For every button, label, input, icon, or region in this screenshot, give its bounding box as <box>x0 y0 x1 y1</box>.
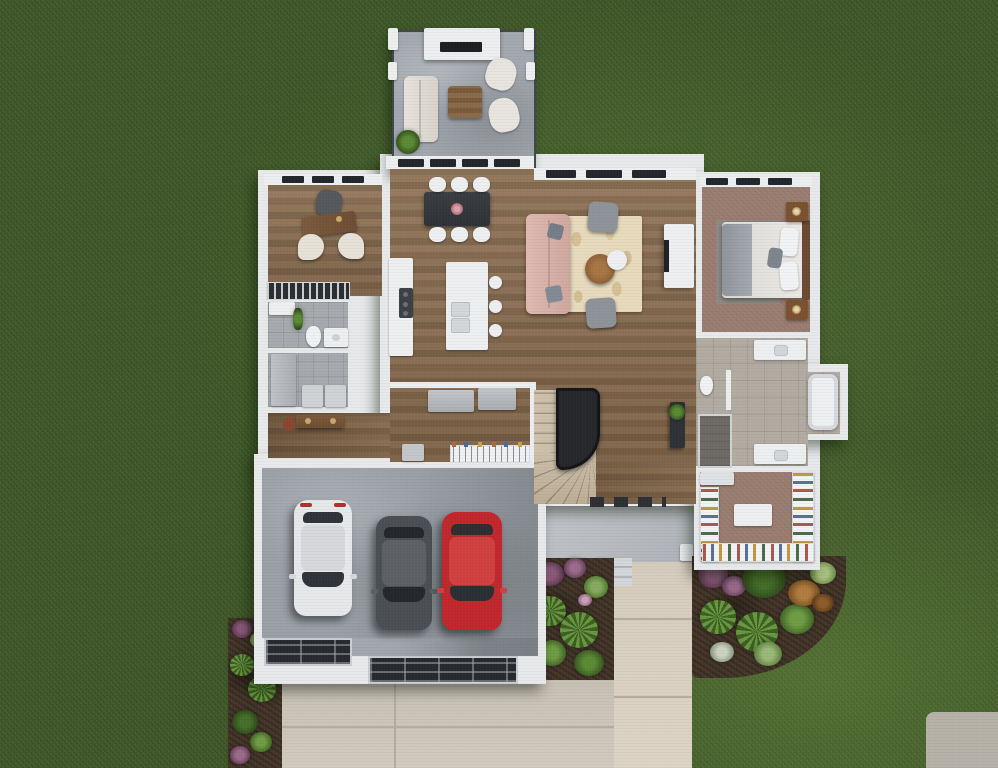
garden-bed-right-of-walkway <box>692 556 846 678</box>
driveway-joint-horizontal <box>262 726 614 728</box>
dining-chair <box>429 227 446 242</box>
bar-stool <box>489 300 502 313</box>
purple-flower-plant <box>230 746 250 764</box>
gray-car-mirror <box>430 589 437 594</box>
closet-cabinet <box>700 472 734 485</box>
deck-coffee-table <box>448 86 482 118</box>
slatted-console <box>266 282 350 300</box>
patio-door-pane <box>398 159 424 167</box>
garage-door-large <box>368 656 518 684</box>
closet-wardrobe-south <box>702 543 814 562</box>
walk-in-shower <box>698 414 732 468</box>
front-walkway <box>614 560 692 768</box>
silver-plant <box>710 642 734 662</box>
walkway-joint-2 <box>614 696 692 698</box>
range-burner <box>403 292 408 297</box>
bedroom-window <box>706 178 728 185</box>
bedroom-window <box>768 178 792 185</box>
patio-door-pane <box>430 159 456 167</box>
dining-chair <box>451 227 468 242</box>
pink-flower-plant <box>578 594 592 606</box>
bar-stool <box>489 324 502 337</box>
console-plant <box>669 404 685 420</box>
hall-decor <box>330 418 336 424</box>
mudroom-cabinet <box>478 388 516 410</box>
dryer <box>325 385 346 407</box>
white-car-taillight <box>300 503 312 507</box>
porch <box>526 504 694 562</box>
patio-door-pane <box>462 159 488 167</box>
deck-potted-plant <box>396 130 420 154</box>
vanity-sink <box>774 345 788 356</box>
shrub-plant <box>232 710 258 734</box>
red-car-mirror <box>437 588 444 593</box>
living-window <box>546 170 576 178</box>
living-armchair <box>587 201 619 233</box>
walkway-joint-1 <box>614 618 692 620</box>
bedroom-window <box>736 178 760 185</box>
front-door-threshold <box>590 497 666 507</box>
pale-plant <box>754 642 782 666</box>
gray-car-roof <box>382 540 426 586</box>
powder-vanity-left <box>269 302 295 315</box>
island-sink <box>451 318 470 333</box>
purple-flower-plant <box>564 558 586 578</box>
deck-sofa-cushion-line <box>419 80 421 138</box>
deck-post <box>524 28 534 50</box>
headboard <box>802 220 810 300</box>
water-closet-wall <box>726 370 731 410</box>
fern-plant <box>560 612 598 648</box>
white-car-taillight <box>334 503 346 507</box>
shrub-plant <box>780 604 814 634</box>
coat-rail-clothes <box>452 442 526 447</box>
toilet <box>700 376 713 395</box>
nightstand-lamp <box>792 207 801 216</box>
red-car <box>442 512 502 630</box>
office-window <box>312 176 334 183</box>
deck-post <box>526 62 535 80</box>
white-car-mirror <box>350 574 357 579</box>
gray-car-mirror <box>371 589 378 594</box>
mudroom-cabinet <box>428 390 474 412</box>
hall-ornament <box>283 417 295 431</box>
hall-decor <box>305 418 311 424</box>
dining-chair <box>473 177 490 192</box>
range-burner <box>403 302 408 307</box>
living-armchair <box>585 297 617 329</box>
office-window <box>282 176 304 183</box>
side-table-round <box>607 250 627 270</box>
office-window <box>342 176 364 183</box>
deck-post <box>388 28 398 50</box>
gray-car-windshield <box>383 587 425 602</box>
range-burner <box>403 311 408 316</box>
dining-chair <box>451 177 468 192</box>
island-sink <box>451 302 470 317</box>
bed-blanket <box>722 224 752 296</box>
dining-chair <box>429 177 446 192</box>
fern-plant <box>700 600 736 634</box>
white-car-mirror <box>289 574 296 579</box>
garage-door-small <box>264 638 352 666</box>
washer <box>302 385 323 407</box>
sofa-throw-pillow <box>545 285 564 304</box>
red-car-mirror <box>500 588 507 593</box>
living-window <box>632 170 666 178</box>
deck-post <box>388 62 397 80</box>
nightstand-lamp <box>792 305 801 314</box>
shrub-plant <box>574 650 604 676</box>
gray-car <box>376 516 432 630</box>
closet-island <box>734 504 772 526</box>
aerial-floorplan-scene <box>0 0 998 768</box>
red-car-roof <box>449 537 495 585</box>
white-car-windshield <box>302 572 344 587</box>
powder-sink <box>332 334 340 341</box>
bathtub <box>808 374 838 430</box>
dining-chair <box>473 227 490 242</box>
purple-flower-plant <box>232 620 252 638</box>
laundry-cabinet <box>271 354 296 406</box>
bed-pillow <box>779 261 799 290</box>
orange-plant <box>812 594 834 612</box>
living-window <box>586 170 622 178</box>
patio-door-pane <box>494 159 520 167</box>
dining-centerpiece <box>451 203 463 215</box>
coat-rail <box>450 445 530 463</box>
white-car <box>294 500 352 616</box>
garage-floor-right-extension <box>350 638 538 656</box>
hall-console-table <box>296 415 344 428</box>
outdoor-fireplace-opening <box>440 42 482 52</box>
gray-car-rear-window <box>384 527 424 538</box>
bar-stool <box>489 276 502 289</box>
white-car-rear-window <box>303 512 343 523</box>
shrub-plant <box>250 732 272 752</box>
fireplace-firebox <box>664 240 669 272</box>
stone-pad-corner <box>926 712 998 768</box>
red-car-windshield <box>450 586 494 601</box>
bed-accent-pillow <box>767 247 784 269</box>
toilet <box>306 326 321 347</box>
white-car-roof <box>301 525 345 571</box>
bath-plant <box>293 308 303 330</box>
fern-plant <box>230 654 254 676</box>
office-guest-chair <box>338 233 364 259</box>
desk-lamp <box>336 216 342 222</box>
mudroom-bench <box>402 444 424 461</box>
red-car-rear-window <box>451 524 493 535</box>
vanity-sink <box>774 450 788 461</box>
